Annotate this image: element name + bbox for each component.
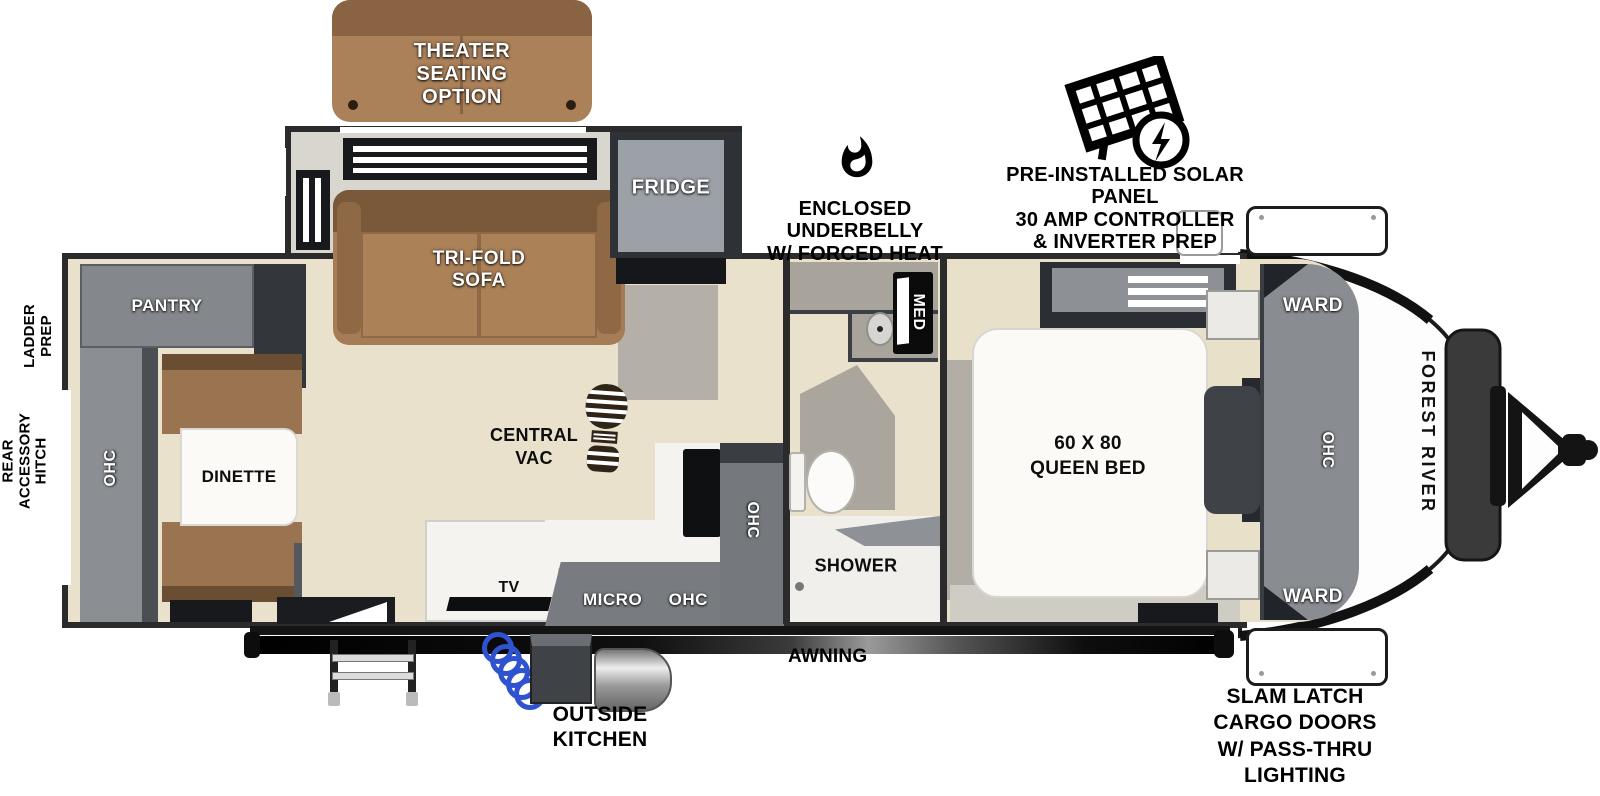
theater-cup-left — [348, 100, 358, 110]
slam-latch-label: SLAM LATCH CARGO DOORS W/ PASS-THRU LIGH… — [1185, 684, 1405, 789]
tri-fold-sofa-label: TRI-FOLD SOFA — [394, 248, 564, 292]
awning-cap-right — [1214, 630, 1234, 658]
slide-side-window — [296, 170, 330, 250]
cargo-door-bottom — [1246, 628, 1388, 686]
ladder-prep-label: LADDER PREP — [21, 304, 56, 368]
shower-head — [795, 582, 804, 591]
dinette-window — [170, 600, 252, 622]
central-vac-line1: CENTRAL — [478, 424, 590, 447]
queen-bed-line2: QUEEN BED — [1008, 457, 1168, 482]
kitchen-ohc-lower-text: OHC — [669, 590, 708, 609]
front-wardrobe-run — [1260, 264, 1359, 620]
theater-line1: THEATER — [377, 40, 547, 63]
rear-hitch-line3: HITCH — [33, 413, 50, 509]
bathroom-wall-right — [940, 259, 947, 624]
bedroom-top-window — [1180, 255, 1240, 264]
queen-bed-label: 60 X 80 QUEEN BED — [1008, 432, 1168, 481]
tv-unit — [446, 597, 551, 611]
dinette-label-text: DINETTE — [202, 467, 277, 487]
ward-top-text: WARD — [1283, 295, 1343, 317]
toilet-tank — [789, 452, 806, 512]
slideout-exterior-strip — [340, 127, 586, 133]
bedroom-bottom-window — [1138, 603, 1218, 623]
awning-label-text: AWNING — [788, 646, 867, 667]
theater-label: THEATER SEATING OPTION — [377, 40, 547, 109]
entry-door-swing — [329, 602, 387, 622]
med-label: MED — [909, 293, 927, 330]
bed-headboard — [1204, 386, 1260, 514]
solar-line2: 30 AMP CONTROLLER — [985, 209, 1265, 231]
bath-sink-drain — [877, 326, 883, 332]
kitchen-ohc-upper-label: OHC — [743, 501, 761, 538]
slam-latch-line2: CARGO DOORS — [1185, 710, 1405, 736]
rear-ohc-label: OHC — [102, 449, 120, 486]
theater-cup-right — [566, 100, 576, 110]
med-cabinet-door — [897, 277, 909, 344]
outside-kitchen-griddle — [530, 634, 592, 704]
rear-hitch-line2: ACCESSORY — [17, 413, 34, 509]
pantry-label-text: PANTRY — [132, 296, 203, 316]
entry-steps — [328, 640, 420, 708]
queen-bed-line1: 60 X 80 — [1008, 432, 1168, 457]
wardrobe-shadow-top — [1264, 264, 1308, 298]
sofa-back — [333, 190, 625, 232]
micro-label-text: MICRO — [583, 590, 642, 609]
hitch-plate — [1490, 386, 1506, 506]
dinette-bench-bottom — [162, 522, 302, 602]
toilet-bowl — [806, 450, 856, 514]
slam-latch-line4: LIGHTING — [1185, 763, 1405, 789]
outside-kitchen-line2: KITCHEN — [510, 727, 690, 752]
walkway-patch-living — [618, 285, 718, 400]
dinette-bench-top — [162, 354, 302, 434]
bathroom-wall-left — [783, 259, 790, 624]
outside-kitchen-line1: OUTSIDE — [510, 702, 690, 727]
theater-back — [332, 0, 592, 36]
underbelly-label: ENCLOSED UNDERBELLY W/ FORCED HEAT — [730, 198, 980, 265]
sofa-label-line2: SOFA — [394, 270, 564, 292]
theater-line2: SEATING — [377, 63, 547, 86]
central-vac-line2: VAC — [478, 447, 590, 470]
walkway-patch-bedroom — [947, 360, 975, 600]
rear-hitch-label: REAR ACCESSORY HITCH — [0, 413, 50, 509]
outside-kitchen-label: OUTSIDE KITCHEN — [510, 702, 690, 752]
entry-door — [277, 597, 395, 624]
solar-panel-icon — [1058, 56, 1192, 170]
theater-line3: OPTION — [377, 86, 547, 109]
rear-ohc-cabinet-edge — [142, 348, 158, 622]
nightstand-bottom — [1206, 550, 1260, 600]
ward-bottom-text: WARD — [1283, 586, 1343, 608]
flame-icon — [834, 126, 880, 190]
brand-label: FOREST RIVER — [1418, 350, 1438, 513]
slam-latch-line1: SLAM LATCH — [1185, 684, 1405, 710]
underbelly-line1: ENCLOSED UNDERBELLY — [730, 198, 980, 243]
awning-label: AWNING — [788, 646, 867, 667]
rear-window — [62, 390, 71, 585]
central-vac-label: CENTRAL VAC — [478, 424, 590, 469]
awning-cap-left — [244, 632, 260, 658]
solar-label: PRE-INSTALLED SOLAR PANEL 30 AMP CONTROL… — [985, 164, 1265, 254]
hitch-ball — [1578, 440, 1598, 460]
sofa-arm-left — [337, 202, 361, 334]
ladder-prep-line1: LADDER — [21, 304, 38, 368]
nightstand-top — [1206, 290, 1260, 340]
shower-label-text: SHOWER — [815, 556, 898, 577]
boot-print-icon — [579, 383, 631, 476]
solar-line1: PRE-INSTALLED SOLAR PANEL — [985, 164, 1265, 209]
tv-label-text: TV — [498, 579, 519, 597]
sofa-label-line1: TRI-FOLD — [394, 248, 564, 270]
cooktop — [683, 449, 721, 537]
slideout-side-strip — [279, 148, 286, 196]
rear-hitch-line1: REAR — [0, 413, 17, 509]
fridge-label-text: FRIDGE — [632, 177, 711, 200]
ladder-prep-line2: PREP — [38, 304, 55, 368]
slam-latch-line3: W/ PASS-THRU — [1185, 737, 1405, 763]
rv-floorplan: FOREST RIVER PANTRY OHC DINETTE TRI-FOLD… — [0, 0, 1600, 796]
cargo-door-top — [1246, 206, 1388, 256]
slide-window — [343, 138, 597, 180]
fridge-base-cabinet — [616, 258, 726, 284]
bedroom-ohc-label: OHC — [1318, 431, 1336, 468]
underbelly-line2: W/ FORCED HEAT — [730, 243, 980, 265]
awning-rail — [250, 626, 1230, 635]
solar-line3: & INVERTER PREP — [985, 231, 1265, 253]
micro-ohc-label: MICRO OHC — [583, 590, 708, 610]
